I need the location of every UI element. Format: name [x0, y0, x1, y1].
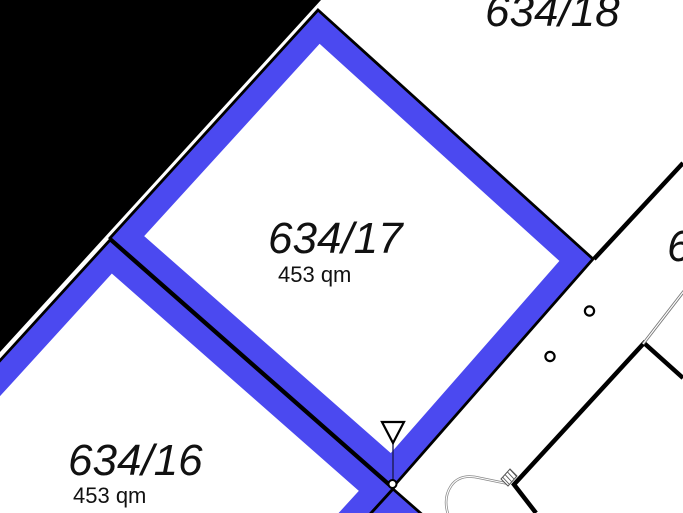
area-label-634-16: 453 qm: [73, 485, 146, 507]
boundary-point-icon: [545, 352, 554, 361]
parcel-label-634-16[interactable]: 634/16: [68, 439, 203, 483]
boundary-point-icon: [585, 306, 594, 315]
boundary-line-east: [514, 343, 683, 513]
parcel-label-634-18[interactable]: 634/18: [485, 0, 620, 34]
cadastral-map-view: 634/18 634/17 453 qm 634/16 453 qm 6: [0, 0, 683, 513]
parcel-label-634-17[interactable]: 634/17: [268, 217, 403, 261]
area-label-634-17: 453 qm: [278, 264, 351, 286]
parcel-label-right-clipped[interactable]: 6: [667, 225, 683, 269]
